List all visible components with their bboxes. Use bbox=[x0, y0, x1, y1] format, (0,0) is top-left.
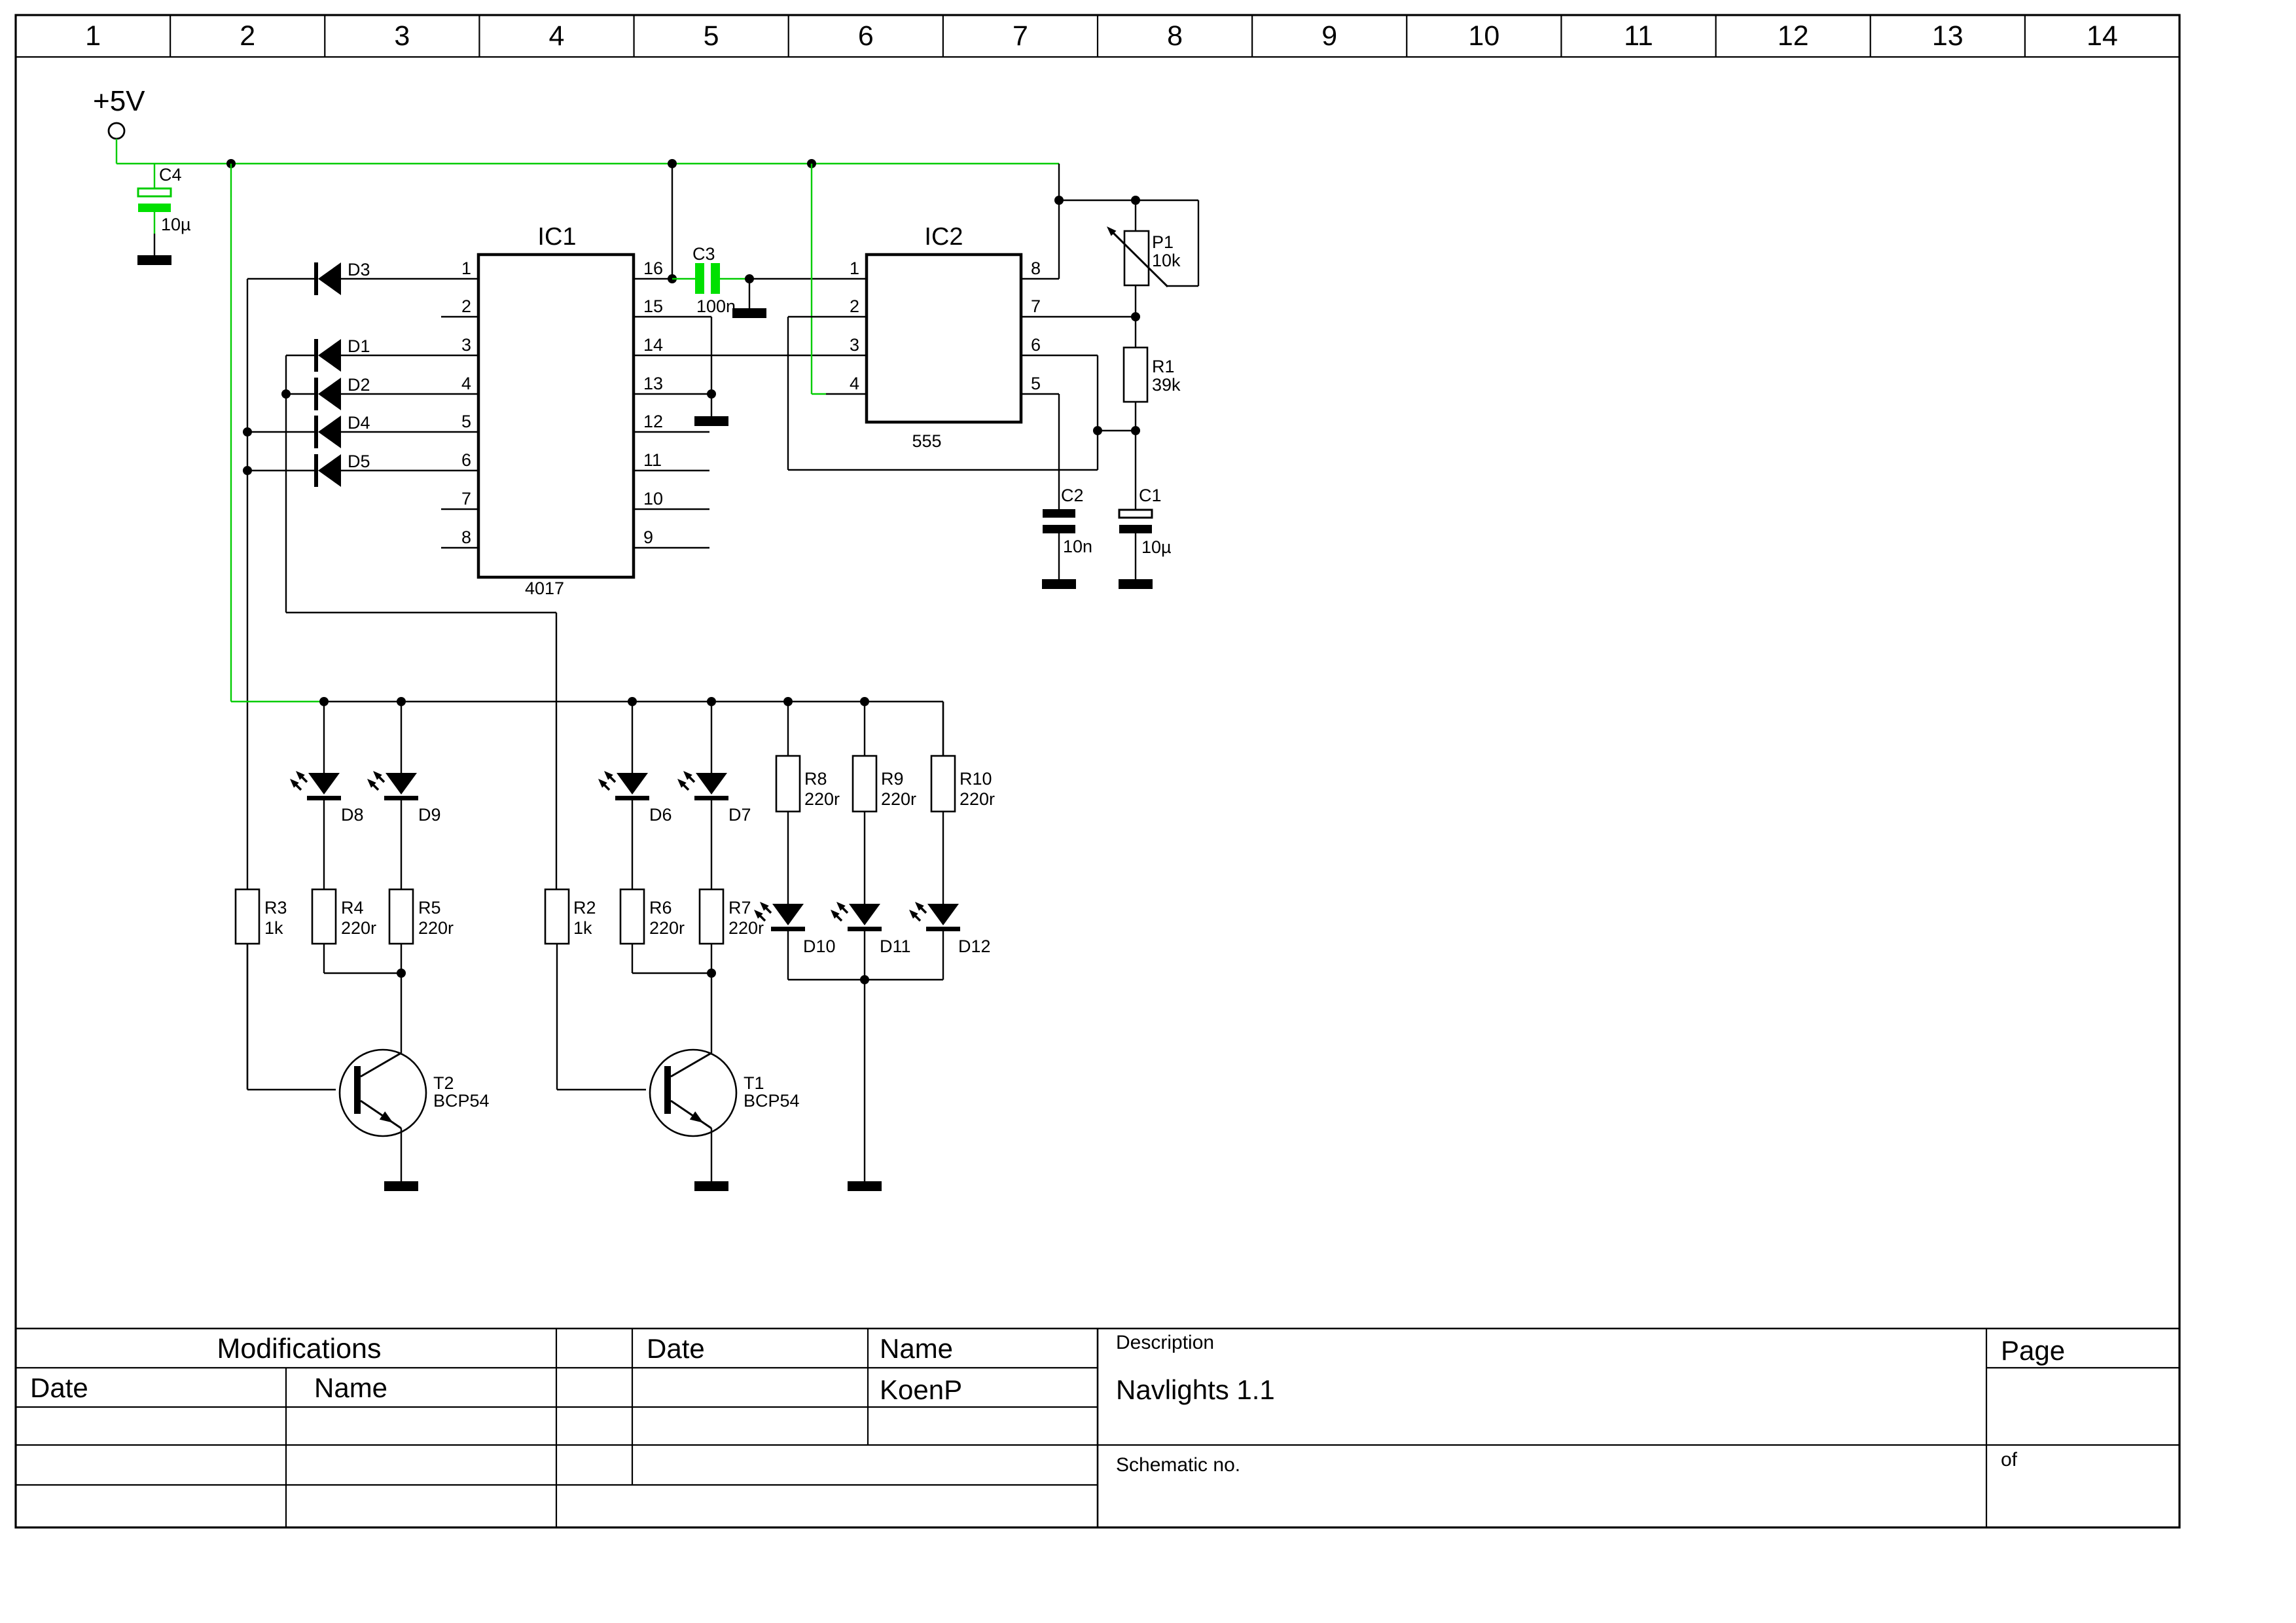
svg-text:8: 8 bbox=[1167, 20, 1183, 52]
svg-text:11: 11 bbox=[1624, 20, 1653, 52]
svg-text:D9: D9 bbox=[418, 805, 441, 825]
svg-text:D10: D10 bbox=[803, 936, 836, 956]
svg-text:D3: D3 bbox=[348, 260, 370, 279]
svg-text:9: 9 bbox=[643, 527, 653, 547]
svg-text:10k: 10k bbox=[1152, 251, 1181, 270]
svg-text:8: 8 bbox=[1031, 259, 1041, 278]
svg-text:D4: D4 bbox=[348, 413, 370, 433]
svg-text:D11: D11 bbox=[880, 936, 911, 956]
svg-text:T2: T2 bbox=[433, 1073, 454, 1093]
svg-text:3: 3 bbox=[394, 20, 410, 52]
svg-text:10: 10 bbox=[643, 489, 663, 508]
svg-text:12: 12 bbox=[1778, 20, 1809, 52]
svg-text:1: 1 bbox=[461, 259, 471, 278]
svg-text:R1: R1 bbox=[1152, 357, 1175, 376]
svg-text:10n: 10n bbox=[1063, 537, 1092, 556]
svg-text:39k: 39k bbox=[1152, 375, 1181, 395]
svg-text:2: 2 bbox=[850, 296, 859, 316]
svg-text:Name: Name bbox=[314, 1372, 387, 1403]
svg-text:Modifications: Modifications bbox=[217, 1333, 382, 1364]
svg-text:Name: Name bbox=[880, 1333, 953, 1364]
svg-text:D2: D2 bbox=[348, 375, 370, 395]
svg-text:7: 7 bbox=[1031, 296, 1041, 316]
svg-text:R4: R4 bbox=[341, 898, 364, 918]
svg-text:13: 13 bbox=[643, 374, 663, 393]
svg-text:6: 6 bbox=[858, 20, 874, 52]
svg-text:R2: R2 bbox=[573, 898, 596, 918]
svg-text:BCP54: BCP54 bbox=[744, 1091, 800, 1111]
svg-text:10: 10 bbox=[1468, 20, 1499, 52]
svg-text:D6: D6 bbox=[649, 805, 672, 825]
svg-text:Date: Date bbox=[30, 1372, 88, 1403]
svg-text:Page: Page bbox=[2001, 1335, 2065, 1366]
svg-text:4017: 4017 bbox=[525, 579, 564, 598]
svg-text:8: 8 bbox=[461, 527, 471, 547]
svg-text:1k: 1k bbox=[573, 918, 592, 938]
svg-text:4: 4 bbox=[549, 20, 565, 52]
svg-text:D1: D1 bbox=[348, 336, 370, 356]
svg-text:4: 4 bbox=[850, 374, 859, 393]
svg-text:R3: R3 bbox=[264, 898, 287, 918]
svg-text:220r: 220r bbox=[881, 789, 916, 809]
svg-text:Date: Date bbox=[647, 1333, 705, 1364]
svg-text:2: 2 bbox=[461, 296, 471, 316]
svg-text:220r: 220r bbox=[960, 789, 995, 809]
svg-text:15: 15 bbox=[643, 296, 663, 316]
svg-text:D8: D8 bbox=[341, 805, 364, 825]
svg-text:1: 1 bbox=[85, 20, 101, 52]
svg-text:5: 5 bbox=[461, 412, 471, 431]
svg-text:C1: C1 bbox=[1139, 486, 1162, 505]
svg-text:R9: R9 bbox=[881, 769, 904, 789]
svg-text:R8: R8 bbox=[804, 769, 827, 789]
svg-text:3: 3 bbox=[850, 335, 859, 355]
svg-text:R10: R10 bbox=[960, 769, 992, 789]
svg-text:7: 7 bbox=[1013, 20, 1028, 52]
svg-text:7: 7 bbox=[461, 489, 471, 508]
svg-text:14: 14 bbox=[643, 335, 663, 355]
svg-text:of: of bbox=[2001, 1449, 2018, 1471]
svg-text:D12: D12 bbox=[958, 936, 991, 956]
svg-text:16: 16 bbox=[643, 259, 663, 278]
svg-text:5: 5 bbox=[704, 20, 719, 52]
svg-text:220r: 220r bbox=[649, 918, 685, 938]
svg-text:100n: 100n bbox=[696, 296, 736, 316]
svg-text:6: 6 bbox=[1031, 335, 1041, 355]
svg-text:D5: D5 bbox=[348, 452, 370, 471]
svg-text:C3: C3 bbox=[692, 244, 715, 264]
svg-text:9: 9 bbox=[1321, 20, 1337, 52]
svg-text:5: 5 bbox=[1031, 374, 1041, 393]
svg-text:10µ: 10µ bbox=[161, 215, 191, 234]
svg-text:IC1: IC1 bbox=[537, 223, 576, 251]
svg-text:14: 14 bbox=[2087, 20, 2118, 52]
svg-text:IC2: IC2 bbox=[924, 223, 963, 251]
svg-text:Schematic no.: Schematic no. bbox=[1116, 1454, 1240, 1476]
svg-text:10µ: 10µ bbox=[1141, 537, 1172, 557]
svg-text:220r: 220r bbox=[804, 789, 840, 809]
svg-text:220r: 220r bbox=[341, 918, 376, 938]
svg-text:R5: R5 bbox=[418, 898, 441, 918]
svg-text:555: 555 bbox=[912, 431, 941, 451]
svg-text:T1: T1 bbox=[744, 1073, 764, 1093]
svg-text:KoenP: KoenP bbox=[880, 1374, 962, 1405]
svg-text:C2: C2 bbox=[1061, 486, 1084, 505]
svg-text:220r: 220r bbox=[418, 918, 454, 938]
svg-text:R6: R6 bbox=[649, 898, 672, 918]
svg-text:+5V: +5V bbox=[93, 85, 145, 117]
svg-text:BCP54: BCP54 bbox=[433, 1091, 490, 1111]
svg-text:1k: 1k bbox=[264, 918, 283, 938]
svg-text:C4: C4 bbox=[159, 165, 182, 185]
svg-text:1: 1 bbox=[850, 259, 859, 278]
svg-text:4: 4 bbox=[461, 374, 471, 393]
svg-text:12: 12 bbox=[643, 412, 663, 431]
svg-text:2: 2 bbox=[240, 20, 255, 52]
svg-text:Navlights 1.1: Navlights 1.1 bbox=[1116, 1374, 1275, 1405]
svg-text:220r: 220r bbox=[728, 918, 764, 938]
svg-text:13: 13 bbox=[1932, 20, 1964, 52]
svg-text:P1: P1 bbox=[1152, 232, 1174, 252]
svg-text:11: 11 bbox=[643, 450, 662, 470]
svg-text:Description: Description bbox=[1116, 1332, 1214, 1353]
svg-text:D7: D7 bbox=[728, 805, 751, 825]
svg-text:6: 6 bbox=[461, 450, 471, 470]
svg-text:R7: R7 bbox=[728, 898, 751, 918]
svg-text:3: 3 bbox=[461, 335, 471, 355]
